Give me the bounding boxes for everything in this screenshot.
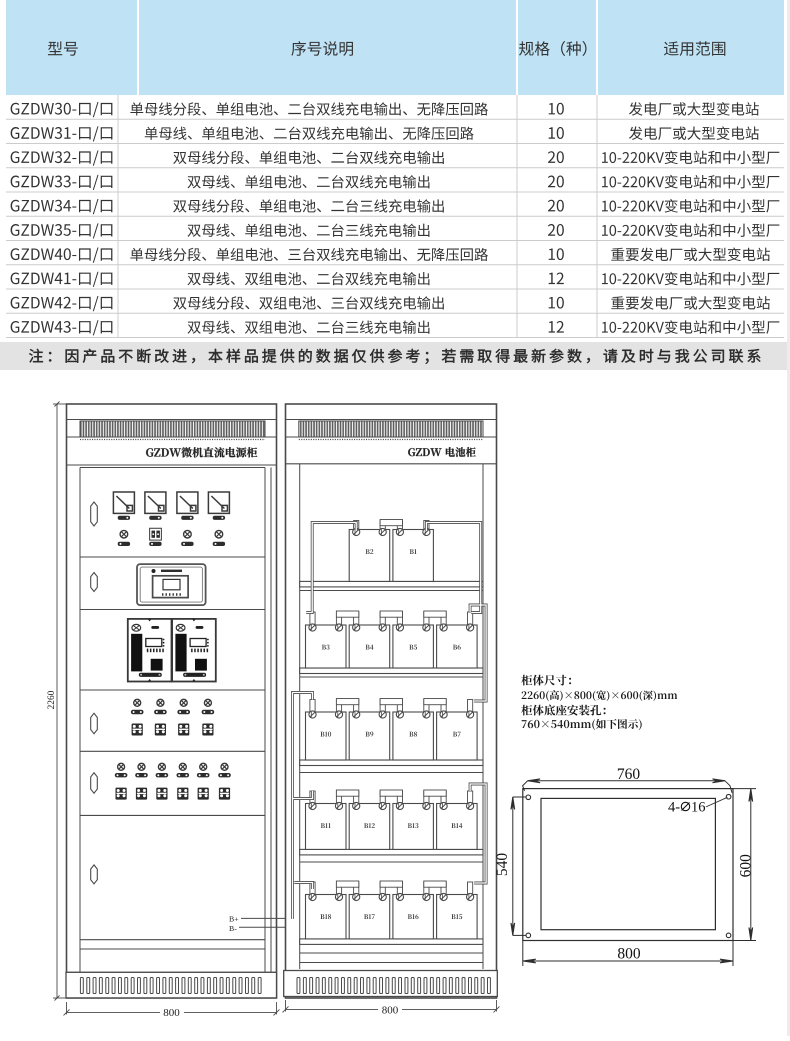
svg-text:800: 800 — [163, 1007, 180, 1019]
svg-text:540: 540 — [494, 853, 511, 877]
svg-text:760: 760 — [617, 766, 641, 783]
svg-text:B-: B- — [229, 924, 237, 933]
svg-text:800: 800 — [617, 946, 641, 963]
svg-text:4-: 4- — [668, 800, 680, 816]
svg-text:16: 16 — [691, 800, 706, 816]
svg-text:600: 600 — [738, 854, 755, 878]
svg-text:800: 800 — [382, 1005, 399, 1017]
svg-text:B+: B+ — [229, 915, 239, 924]
svg-text:2260: 2260 — [47, 690, 57, 709]
